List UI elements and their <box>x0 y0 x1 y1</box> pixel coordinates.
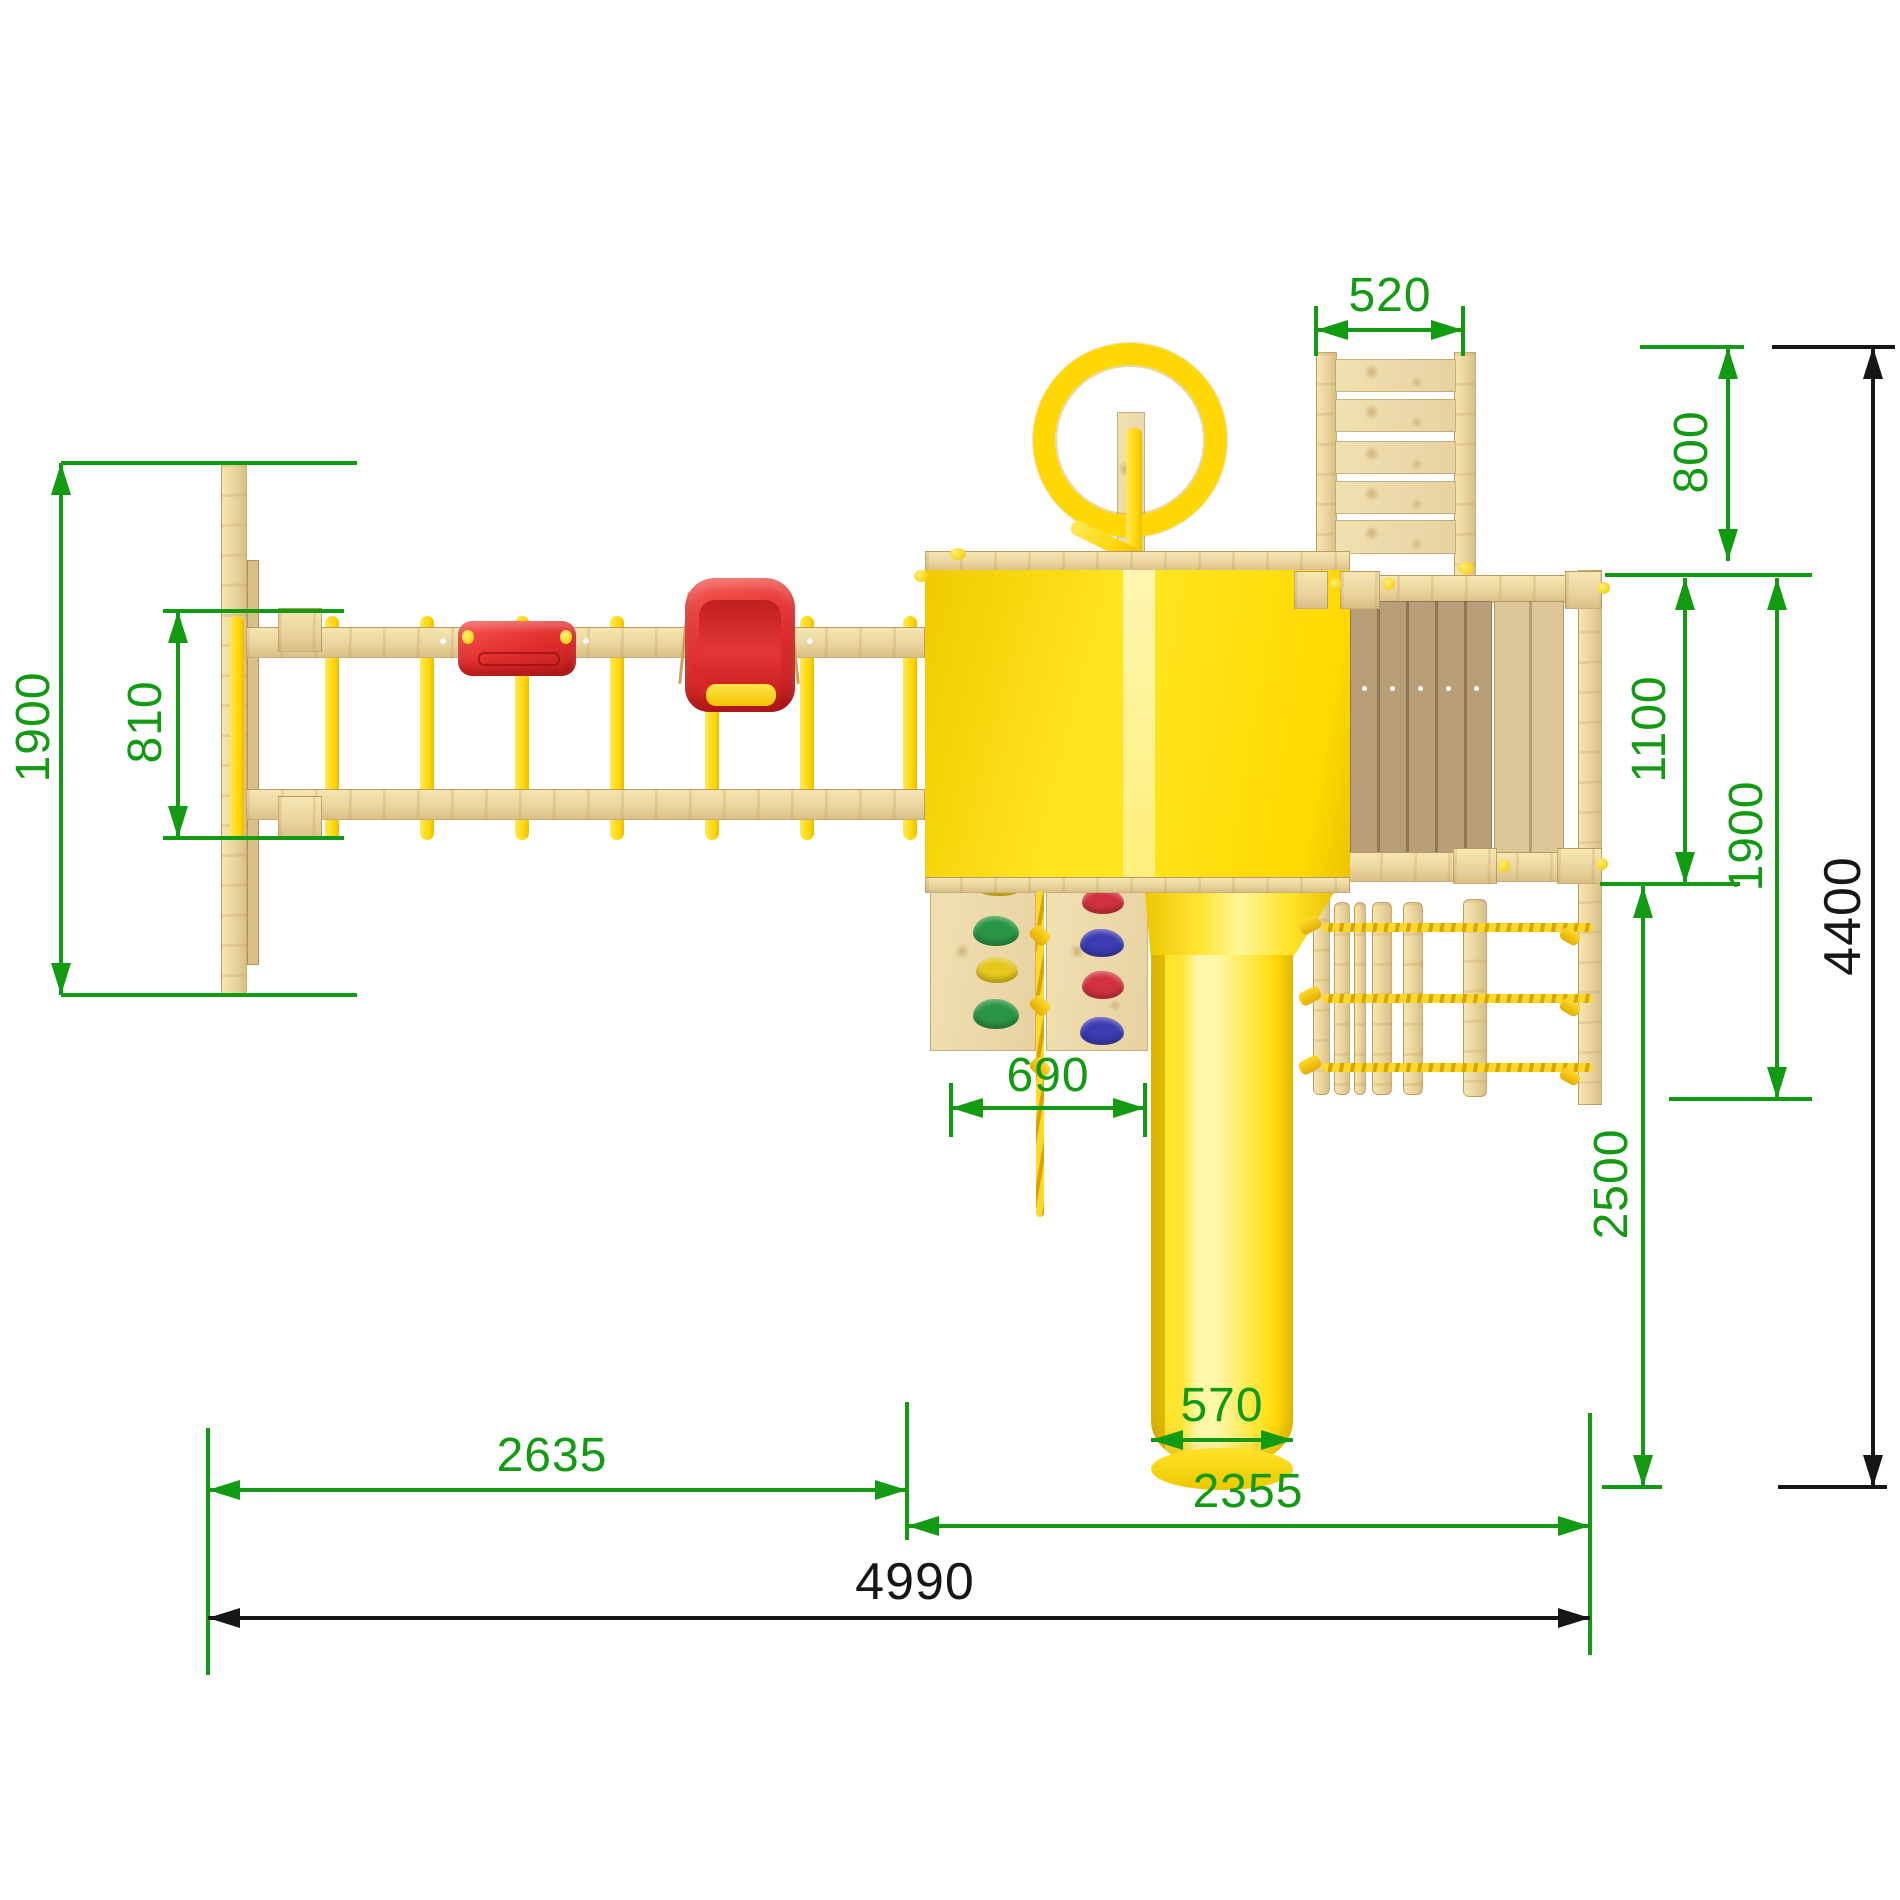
dim-2635-line <box>208 1488 907 1492</box>
dim-2635-label: 2635 <box>452 1432 652 1480</box>
ladder-rung <box>1335 520 1456 554</box>
post-cap <box>1498 860 1510 872</box>
roof-corner-cap <box>950 548 966 560</box>
climbing-hold-red <box>1082 971 1124 999</box>
dim-2500-label: 2500 <box>1588 1099 1636 1269</box>
dim-690-label: 690 <box>948 1052 1148 1100</box>
dim-800-line <box>1726 347 1730 561</box>
playground-top-view-drawing: 1900 810 520 800 1100 1900 2500 4400 690… <box>0 0 1900 1900</box>
dim-800-label: 800 <box>1668 367 1716 537</box>
plank-nail <box>1362 686 1367 691</box>
post-cap <box>1383 578 1395 590</box>
ring-post <box>1126 428 1142 558</box>
dim-extension <box>61 993 357 997</box>
platform-side-planks <box>1494 601 1564 854</box>
ladder-rung <box>1335 481 1456 514</box>
platform-post <box>1294 571 1328 609</box>
tower-roof <box>925 570 1350 879</box>
frame-corner-block <box>278 608 322 652</box>
post-cap <box>1596 858 1608 870</box>
dim-1900-right-label: 1900 <box>1723 751 1771 921</box>
tower-roof-top-rim <box>925 551 1350 572</box>
net-rope <box>1322 1063 1593 1072</box>
platform-post <box>1565 571 1602 609</box>
frame-corner-block <box>278 796 322 840</box>
dim-extension <box>1602 1485 1662 1489</box>
dim-1100-label: 1100 <box>1626 644 1674 814</box>
baby-seat-strap <box>706 684 776 706</box>
swing-hanger <box>560 630 572 644</box>
dim-4990-label: 4990 <box>815 1556 1015 1608</box>
dim-extension <box>61 461 357 465</box>
tower-roof-bottom-rim <box>925 877 1350 893</box>
post-cap <box>1330 578 1342 590</box>
dim-extension <box>1605 573 1812 577</box>
dim-extension <box>163 609 344 613</box>
net-rope <box>1322 994 1593 1003</box>
dim-1900-left-label: 1900 <box>10 642 58 812</box>
dim-690-line <box>951 1106 1145 1110</box>
dim-extension <box>1669 1097 1812 1101</box>
flat-seat-groove <box>478 652 560 666</box>
tower-roof-ridge-highlight <box>1123 570 1155 879</box>
climbing-hold-blue <box>1080 929 1124 957</box>
dim-extension <box>206 1428 210 1675</box>
ladder-cap <box>1458 562 1474 574</box>
swing-end-plank-back <box>247 560 259 965</box>
dim-4990-line <box>208 1616 1590 1620</box>
swing-hanger <box>462 630 474 644</box>
bolt-hole <box>807 638 813 644</box>
plank-nail <box>1446 686 1451 691</box>
platform-post <box>1453 848 1497 884</box>
flat-swing-seat <box>458 621 576 676</box>
net-rope <box>1322 923 1593 932</box>
ladder-rung <box>1335 399 1456 432</box>
tower-roof-right-panel <box>1155 570 1350 879</box>
plank-nail <box>1418 686 1423 691</box>
dim-extension <box>1600 882 1740 886</box>
dim-1900-right-line <box>1775 578 1779 1099</box>
dim-2355-label: 2355 <box>1148 1468 1348 1516</box>
bolt-hole <box>440 638 446 644</box>
plank-nail <box>1474 686 1479 691</box>
swing-leg <box>230 616 244 840</box>
dim-810-line <box>176 611 180 838</box>
dim-570-label: 570 <box>1122 1382 1322 1430</box>
dim-810-label: 810 <box>122 637 170 807</box>
bolt-hole <box>583 638 589 644</box>
climbing-hold-green <box>973 916 1019 946</box>
platform-post <box>1557 848 1602 884</box>
dim-1100-line <box>1683 578 1687 884</box>
ladder-rung <box>1335 359 1456 392</box>
tower-roof-left-panel <box>925 570 1123 879</box>
platform-post <box>1340 571 1380 609</box>
ladder-rail-left <box>1316 352 1337 577</box>
roof-corner-cap <box>914 570 928 582</box>
platform-floor-planks <box>1350 601 1492 854</box>
swing-bottom-beam <box>246 789 925 820</box>
platform-right-rail <box>1578 570 1602 1105</box>
climbing-hold-green <box>973 999 1019 1029</box>
climbing-hold-yellow <box>976 957 1018 983</box>
dim-4400-label: 4400 <box>1817 831 1869 1001</box>
ladder-rung <box>1335 441 1456 474</box>
dim-2355-line <box>907 1524 1590 1528</box>
plank-nail <box>1390 686 1395 691</box>
dim-570-line <box>1151 1438 1293 1442</box>
dim-520-line <box>1316 328 1463 332</box>
ladder-rail-right <box>1454 352 1476 577</box>
dim-2500-line <box>1641 886 1645 1487</box>
baby-seat-inner <box>699 600 781 686</box>
climbing-hold-blue <box>1080 1017 1124 1045</box>
dim-extension <box>163 836 344 840</box>
post-cap <box>1598 582 1610 594</box>
dim-520-label: 520 <box>1290 272 1490 320</box>
